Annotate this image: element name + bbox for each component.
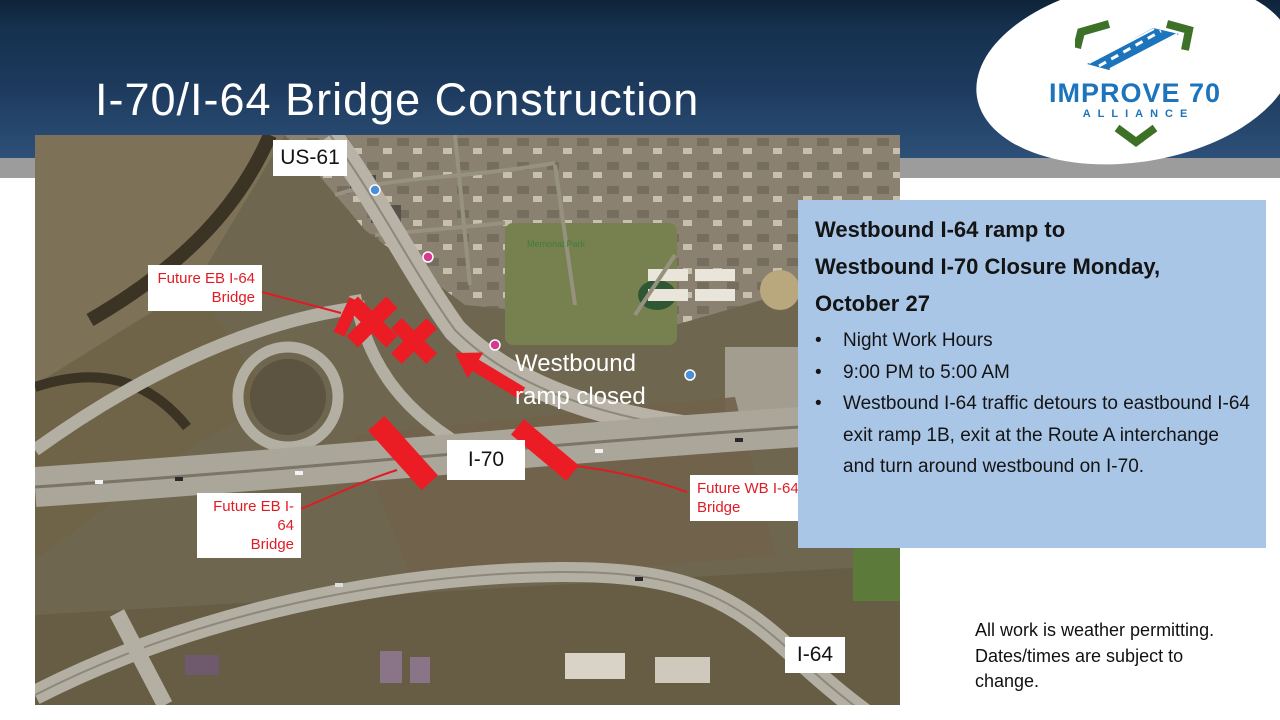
road-label-i70: I-70	[447, 440, 525, 480]
map-pin-pink-icon	[423, 252, 433, 262]
map-pin-blue-icon	[370, 185, 380, 195]
satellite-imagery	[35, 135, 900, 705]
infobox-title: Westbound I-64 ramp to Westbound I-70 Cl…	[815, 211, 1250, 322]
map-pin-pink-icon	[490, 340, 500, 350]
callout-future-eb-bridge-bottom: Future EB I-64 Bridge	[197, 493, 301, 558]
infobox-bullet-list: • Night Work Hours • 9:00 PM to 5:00 AM …	[815, 325, 1250, 483]
bullet-icon: •	[815, 357, 829, 389]
poi-label-memorial-park: Memorial Park	[527, 239, 585, 249]
closure-infobox: Westbound I-64 ramp to Westbound I-70 Cl…	[798, 200, 1266, 548]
road-label-us61: US-61	[273, 140, 347, 176]
list-item: • Westbound I-64 traffic detours to east…	[815, 388, 1250, 483]
improve70-logo: IMPROVE 70 ALLIANCE	[975, 0, 1280, 162]
bullet-icon: •	[815, 325, 829, 357]
page-title: I-70/I-64 Bridge Construction	[95, 74, 699, 126]
list-item: • 9:00 PM to 5:00 AM	[815, 357, 1250, 389]
weather-disclaimer: All work is weather permitting. Dates/ti…	[975, 618, 1265, 695]
bullet-icon: •	[815, 388, 829, 483]
logo-subtitle: ALLIANCE	[975, 108, 1280, 120]
aerial-map: US-61 I-70 I-64 Future EB I-64 Bridge Fu…	[35, 135, 900, 705]
map-pin-blue-icon	[685, 370, 695, 380]
ramp-closed-label: Westbound ramp closed	[515, 347, 646, 413]
slide: I-70/I-64 Bridge Construction IMPROVE 70…	[0, 0, 1280, 720]
list-item: • Night Work Hours	[815, 325, 1250, 357]
chevron-down-icon	[1113, 124, 1159, 148]
road-label-i64: I-64	[785, 637, 845, 673]
logo-name: IMPROVE 70	[975, 78, 1280, 109]
callout-future-eb-bridge-top: Future EB I-64 Bridge	[148, 265, 262, 311]
road-shield-icon	[1075, 20, 1195, 72]
